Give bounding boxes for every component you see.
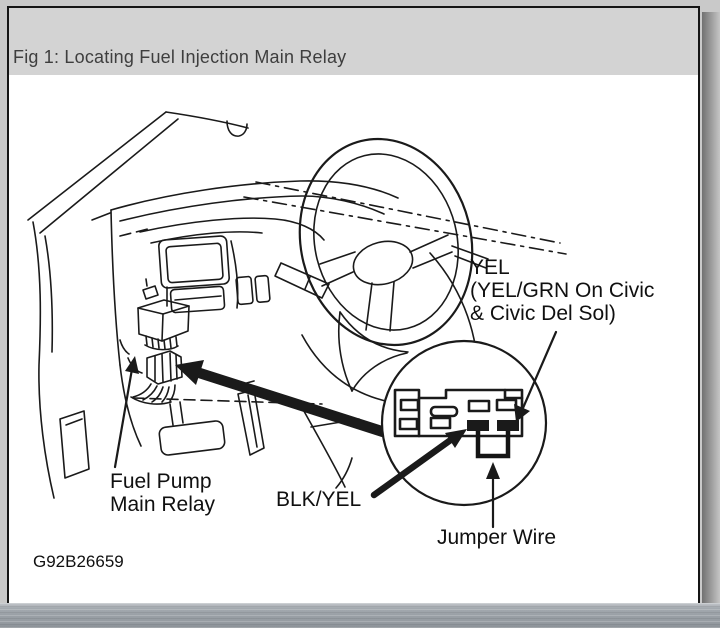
steering-wheel [278,121,493,364]
label-blk-yel-wire: BLK/YEL [276,488,361,511]
figure-code: G92B26659 [33,550,124,573]
figure-viewer: { "colors": { "ink": "#1a1a1a", "page_bg… [0,0,720,628]
label-fuel-pump-main-relay: Fuel Pump Main Relay [110,470,215,516]
steering-hub [349,235,417,290]
yel-terminal [497,420,519,431]
label-jumper-wire: Jumper Wire [437,526,556,549]
label-yel-line1: YEL [470,256,654,279]
accelerator-pedal [238,390,264,455]
arrow-to-relay-connector [175,360,392,439]
relay-connector-drawing [120,340,182,404]
brake-pedal [159,420,226,456]
label-yel-wire: YEL (YEL/GRN On Civic & Civic Del Sol) [470,256,654,325]
label-yel-line3: & Civic Del Sol) [470,302,654,325]
label-yel-line2: (YEL/GRN On Civic [470,279,654,302]
blk-yel-terminal [467,420,489,431]
arrow-fuel-pump-relay [115,369,132,467]
label-fuel-pump-line2: Main Relay [110,493,215,516]
dash-vent [255,275,270,302]
label-fuel-pump-line1: Fuel Pump [110,470,215,493]
bottom-gray-bar [0,603,720,628]
turn-signal-stalk [275,263,329,298]
